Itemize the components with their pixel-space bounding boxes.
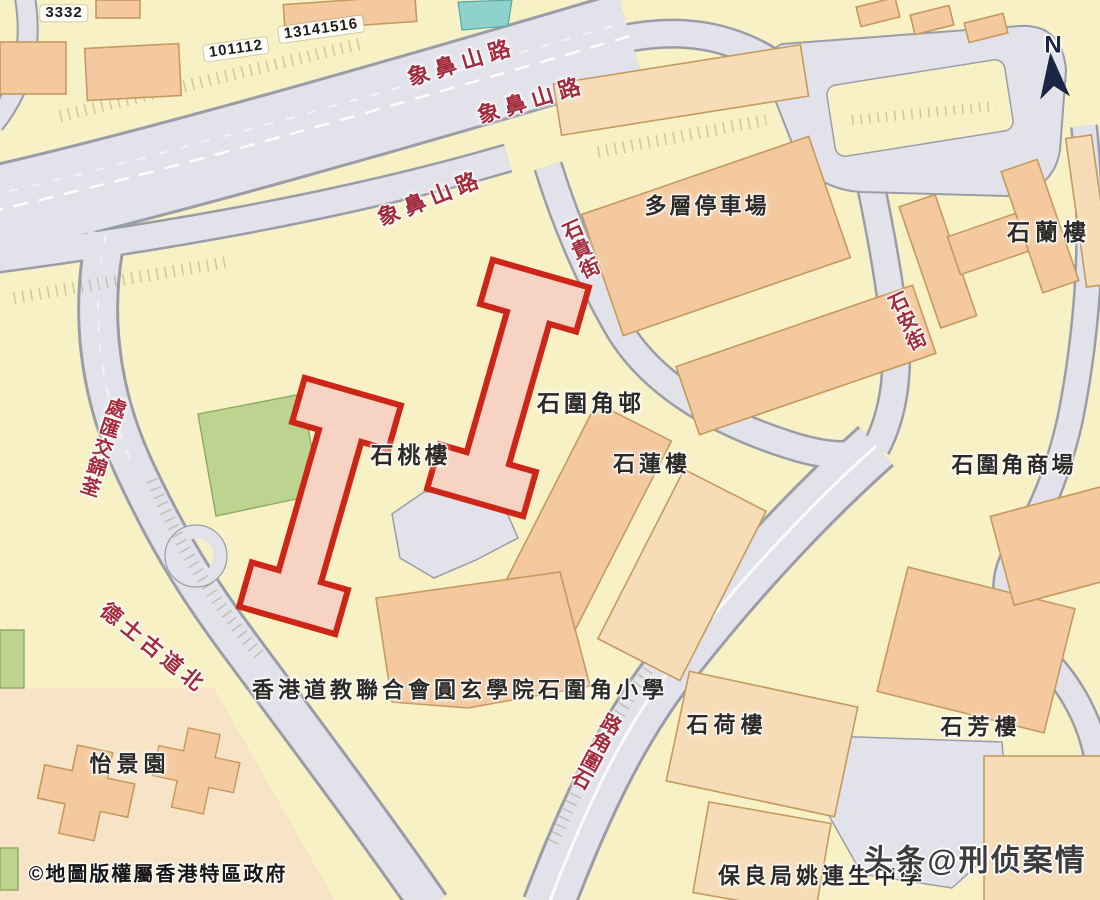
map-canvas: 333210111213141516象鼻山路象鼻山路象鼻山路石 貴 街石 安 街…	[0, 0, 1100, 900]
map-drawing	[0, 0, 1100, 900]
teal-structure	[458, 0, 512, 30]
